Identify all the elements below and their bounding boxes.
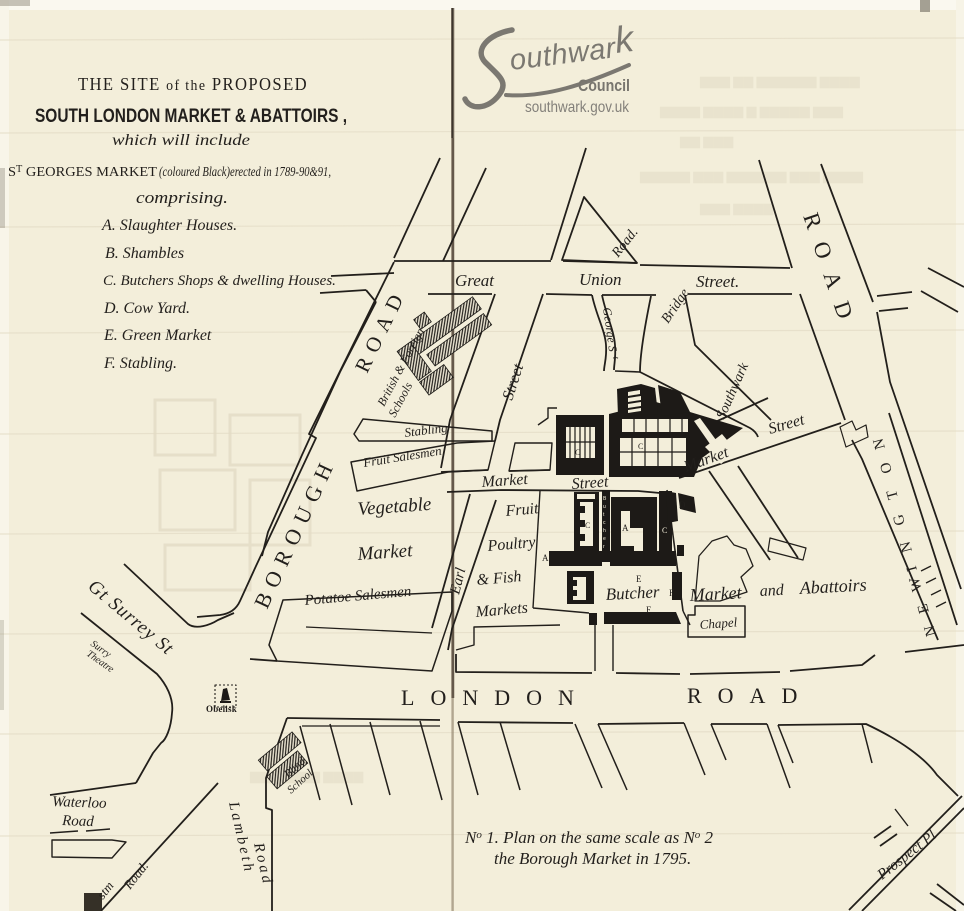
svg-text:Street.: Street. bbox=[696, 272, 739, 291]
svg-text:▆▆▆▆ ▆▆▆▆ ▆ ▆▆▆▆▆ ▆▆▆: ▆▆▆▆ ▆▆▆▆ ▆ ▆▆▆▆▆ ▆▆▆ bbox=[659, 103, 844, 119]
svg-text:comprising.: comprising. bbox=[136, 188, 228, 207]
svg-text:A: A bbox=[622, 523, 629, 533]
svg-text:F. Stabling.: F. Stabling. bbox=[103, 355, 177, 372]
svg-text:▆▆ ▆▆▆: ▆▆ ▆▆▆ bbox=[679, 133, 734, 149]
svg-text:Chapel: Chapel bbox=[699, 614, 738, 632]
svg-text:C: C bbox=[638, 442, 643, 451]
svg-text:▆▆▆ ▆▆▆▆: ▆▆▆ ▆▆▆▆ bbox=[699, 200, 774, 216]
svg-text:the Borough Market in 1795.: the Borough Market in 1795. bbox=[494, 849, 691, 868]
svg-text:Road: Road bbox=[61, 813, 95, 830]
svg-text:Waterloo: Waterloo bbox=[52, 794, 107, 812]
svg-text:No 1. Plan on the same scale: No 1. Plan on the same scale as No 2 bbox=[464, 828, 714, 847]
svg-text:which will include: which will include bbox=[112, 132, 250, 149]
svg-text:Fruit: Fruit bbox=[504, 500, 540, 520]
svg-text:Abattoirs: Abattoirs bbox=[798, 575, 867, 599]
svg-text:▆▆▆▆▆ ▆▆▆ ▆▆▆▆▆▆ ▆▆▆ ▆▆▆▆: ▆▆▆▆▆ ▆▆▆ ▆▆▆▆▆▆ ▆▆▆ ▆▆▆▆ bbox=[639, 168, 864, 184]
svg-text:and: and bbox=[759, 582, 785, 600]
svg-text:u: u bbox=[603, 504, 606, 510]
svg-text:e: e bbox=[603, 536, 606, 542]
svg-text:C: C bbox=[585, 521, 590, 530]
svg-text:Great: Great bbox=[455, 271, 495, 290]
svg-text:Butcher: Butcher bbox=[605, 582, 660, 604]
svg-text:E. Green Market: E. Green Market bbox=[103, 327, 212, 344]
svg-text:B. Shambles: B. Shambles bbox=[105, 245, 184, 262]
svg-text:Market: Market bbox=[356, 540, 414, 565]
svg-text:Union: Union bbox=[579, 270, 622, 289]
svg-text:C: C bbox=[575, 448, 580, 457]
svg-text:Obelisk: Obelisk bbox=[206, 704, 237, 714]
svg-text:southwark.gov.uk: southwark.gov.uk bbox=[525, 99, 630, 116]
svg-text:Council: Council bbox=[578, 76, 630, 95]
svg-text:h: h bbox=[603, 528, 606, 534]
svg-text:(coloured Black)erected in 178: (coloured Black)erected in 1789-90&91, bbox=[159, 165, 331, 180]
svg-text:C: C bbox=[662, 526, 667, 535]
svg-text:Market: Market bbox=[688, 582, 743, 605]
svg-text:D: D bbox=[679, 500, 686, 510]
svg-text:ROAD: ROAD bbox=[687, 683, 813, 708]
svg-text:A. Slaughter Houses.: A. Slaughter Houses. bbox=[101, 217, 237, 234]
svg-text:C. Butchers Shops & dwelling: C. Butchers Shops & dwelling Houses. bbox=[103, 273, 336, 289]
svg-text:A: A bbox=[542, 553, 549, 563]
svg-text:▆▆▆ ▆▆ ▆▆▆▆▆▆ ▆▆▆▆: ▆▆▆ ▆▆ ▆▆▆▆▆▆ ▆▆▆▆ bbox=[699, 73, 861, 89]
svg-text:LONDON: LONDON bbox=[401, 685, 590, 710]
svg-text:F: F bbox=[669, 588, 674, 598]
svg-text:E: E bbox=[636, 574, 642, 584]
svg-text:D. Cow Yard.: D. Cow Yard. bbox=[103, 300, 190, 317]
svg-text:Market: Market bbox=[480, 471, 529, 491]
svg-text:F: F bbox=[646, 605, 651, 615]
svg-text:SOUTH LONDON MARKET & ABATTOIR: SOUTH LONDON MARKET & ABATTOIRS , bbox=[35, 106, 347, 127]
svg-text:ST GEORGES MARKET: ST GEORGES MARKET bbox=[8, 164, 157, 180]
